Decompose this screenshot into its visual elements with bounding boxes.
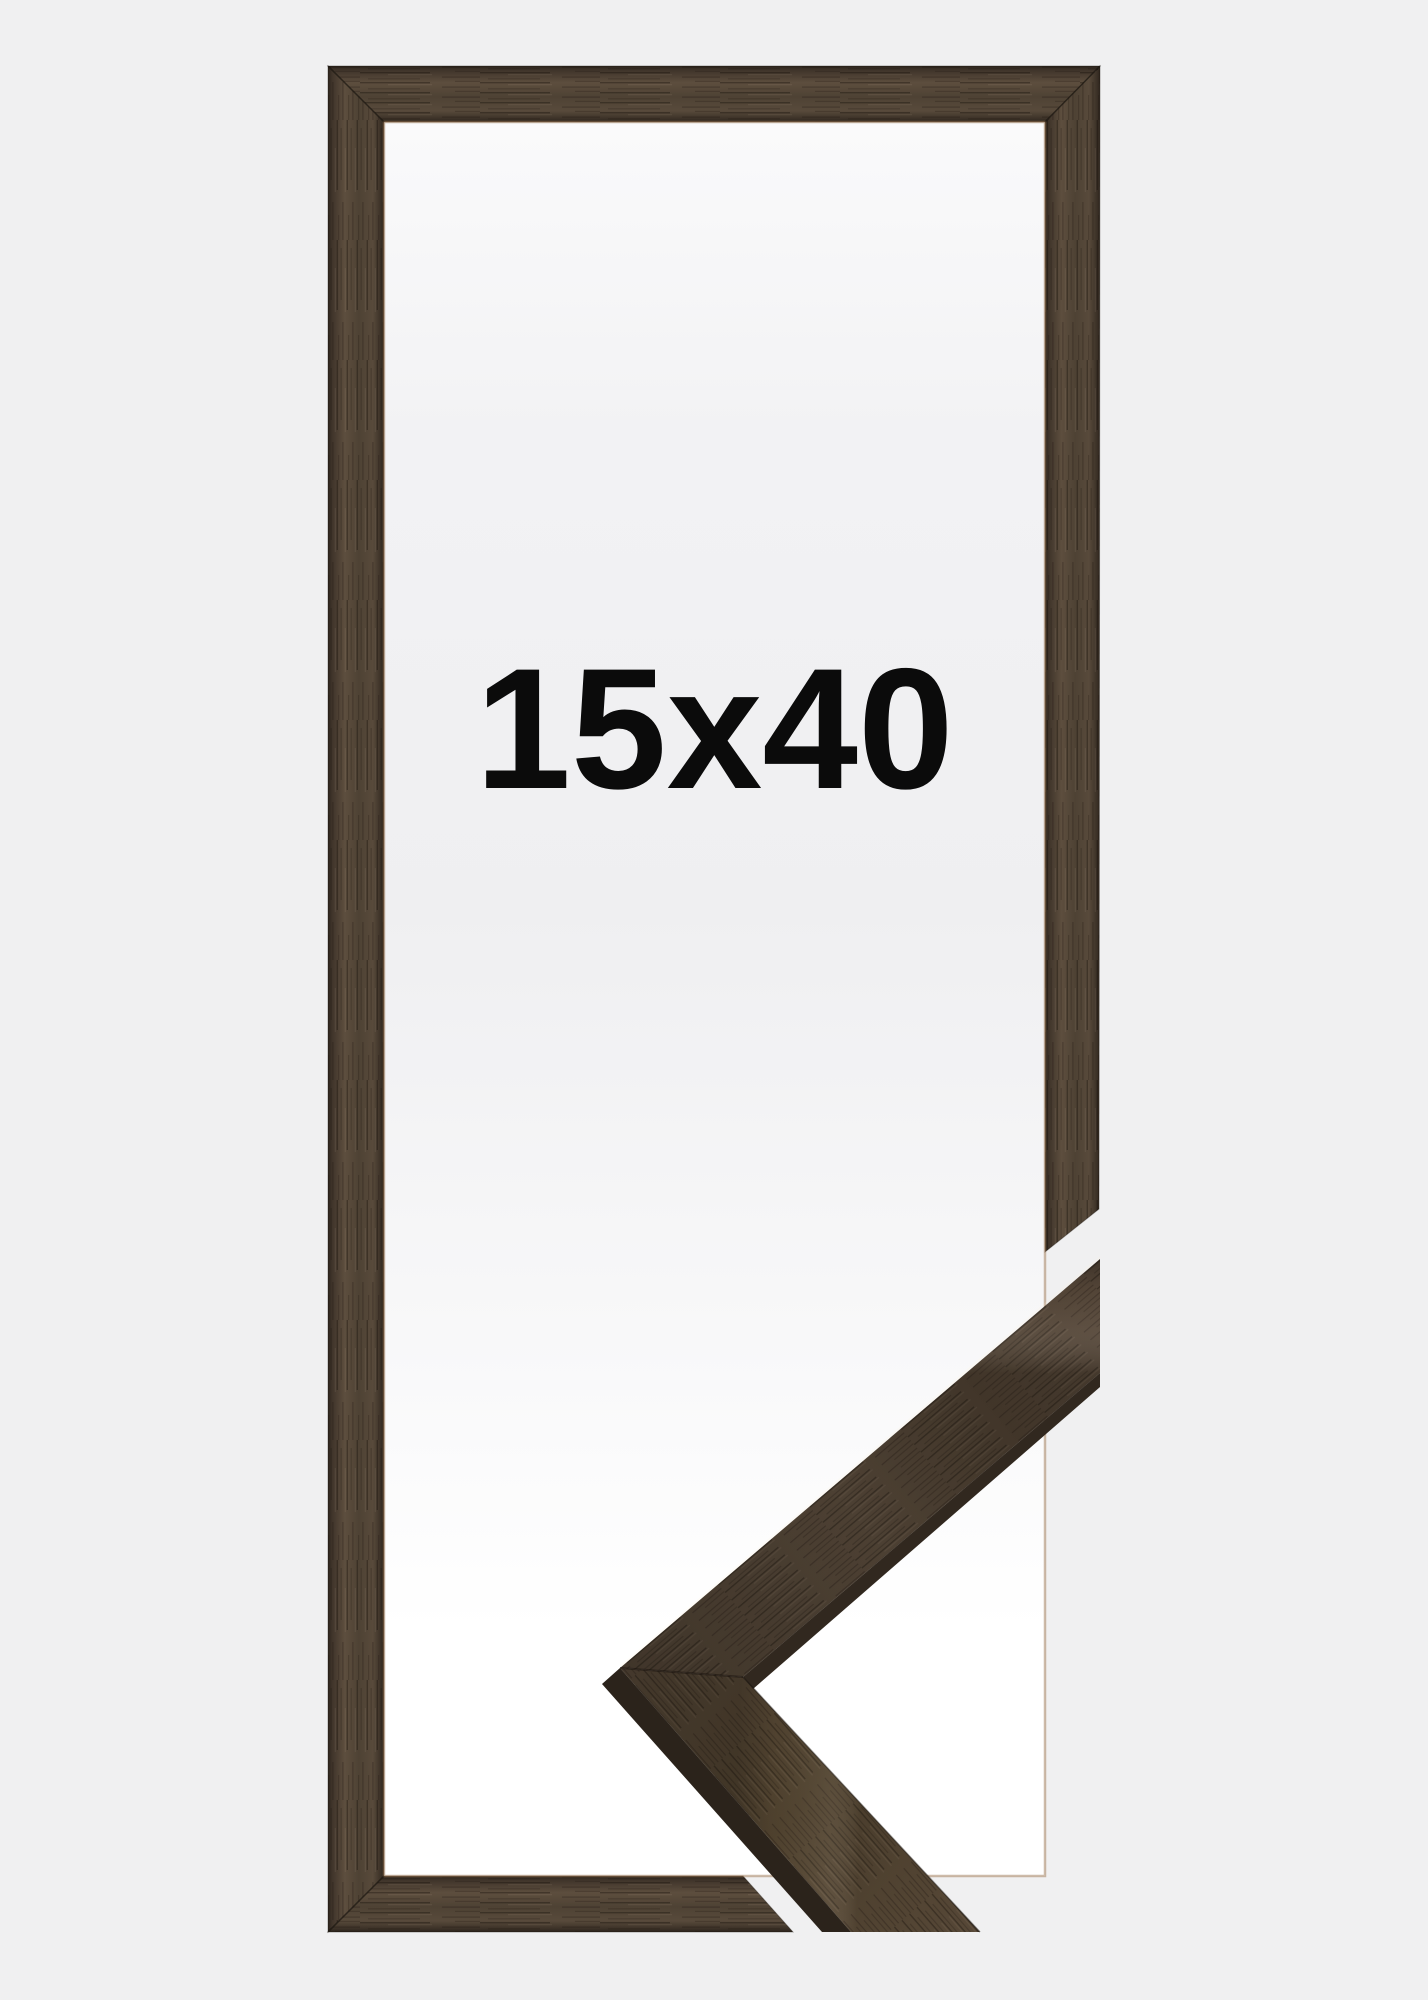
frame-right-bar-grain: [1045, 66, 1100, 1252]
frame-left-bar-grain: [328, 66, 384, 1932]
frame-artwork: [0, 0, 1428, 2000]
product-photo-stage: 15x40: [0, 0, 1428, 2000]
size-label: 15x40: [384, 643, 1045, 815]
frame-bottom-bar-grain: [328, 1876, 793, 1932]
frame-top-bar-grain: [328, 66, 1100, 122]
